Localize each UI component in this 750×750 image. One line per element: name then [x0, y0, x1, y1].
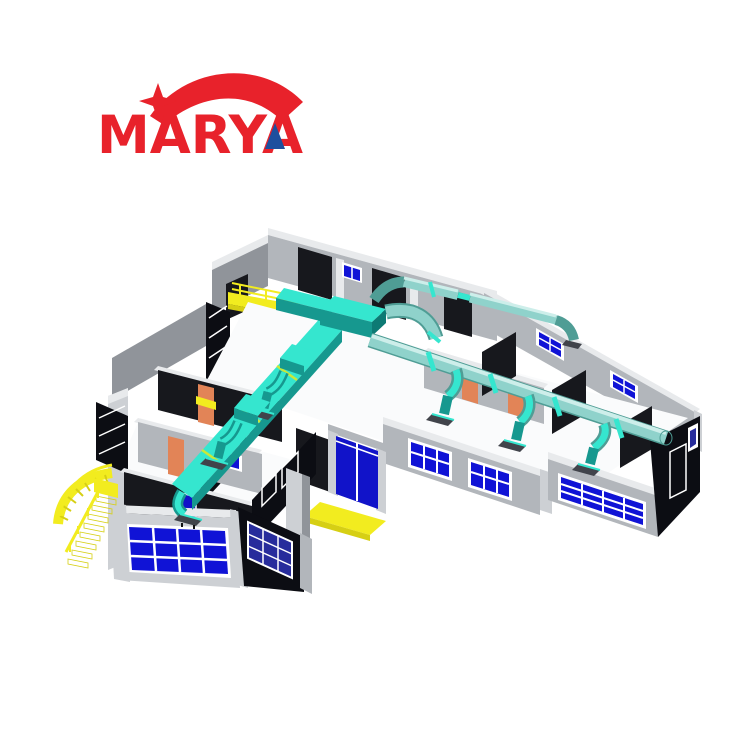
cleanroom-3d-render: MARYA — [0, 0, 750, 750]
window-grid-large — [126, 524, 231, 578]
page: MARYA — [0, 0, 750, 750]
cleanroom-door-orange — [168, 436, 184, 478]
